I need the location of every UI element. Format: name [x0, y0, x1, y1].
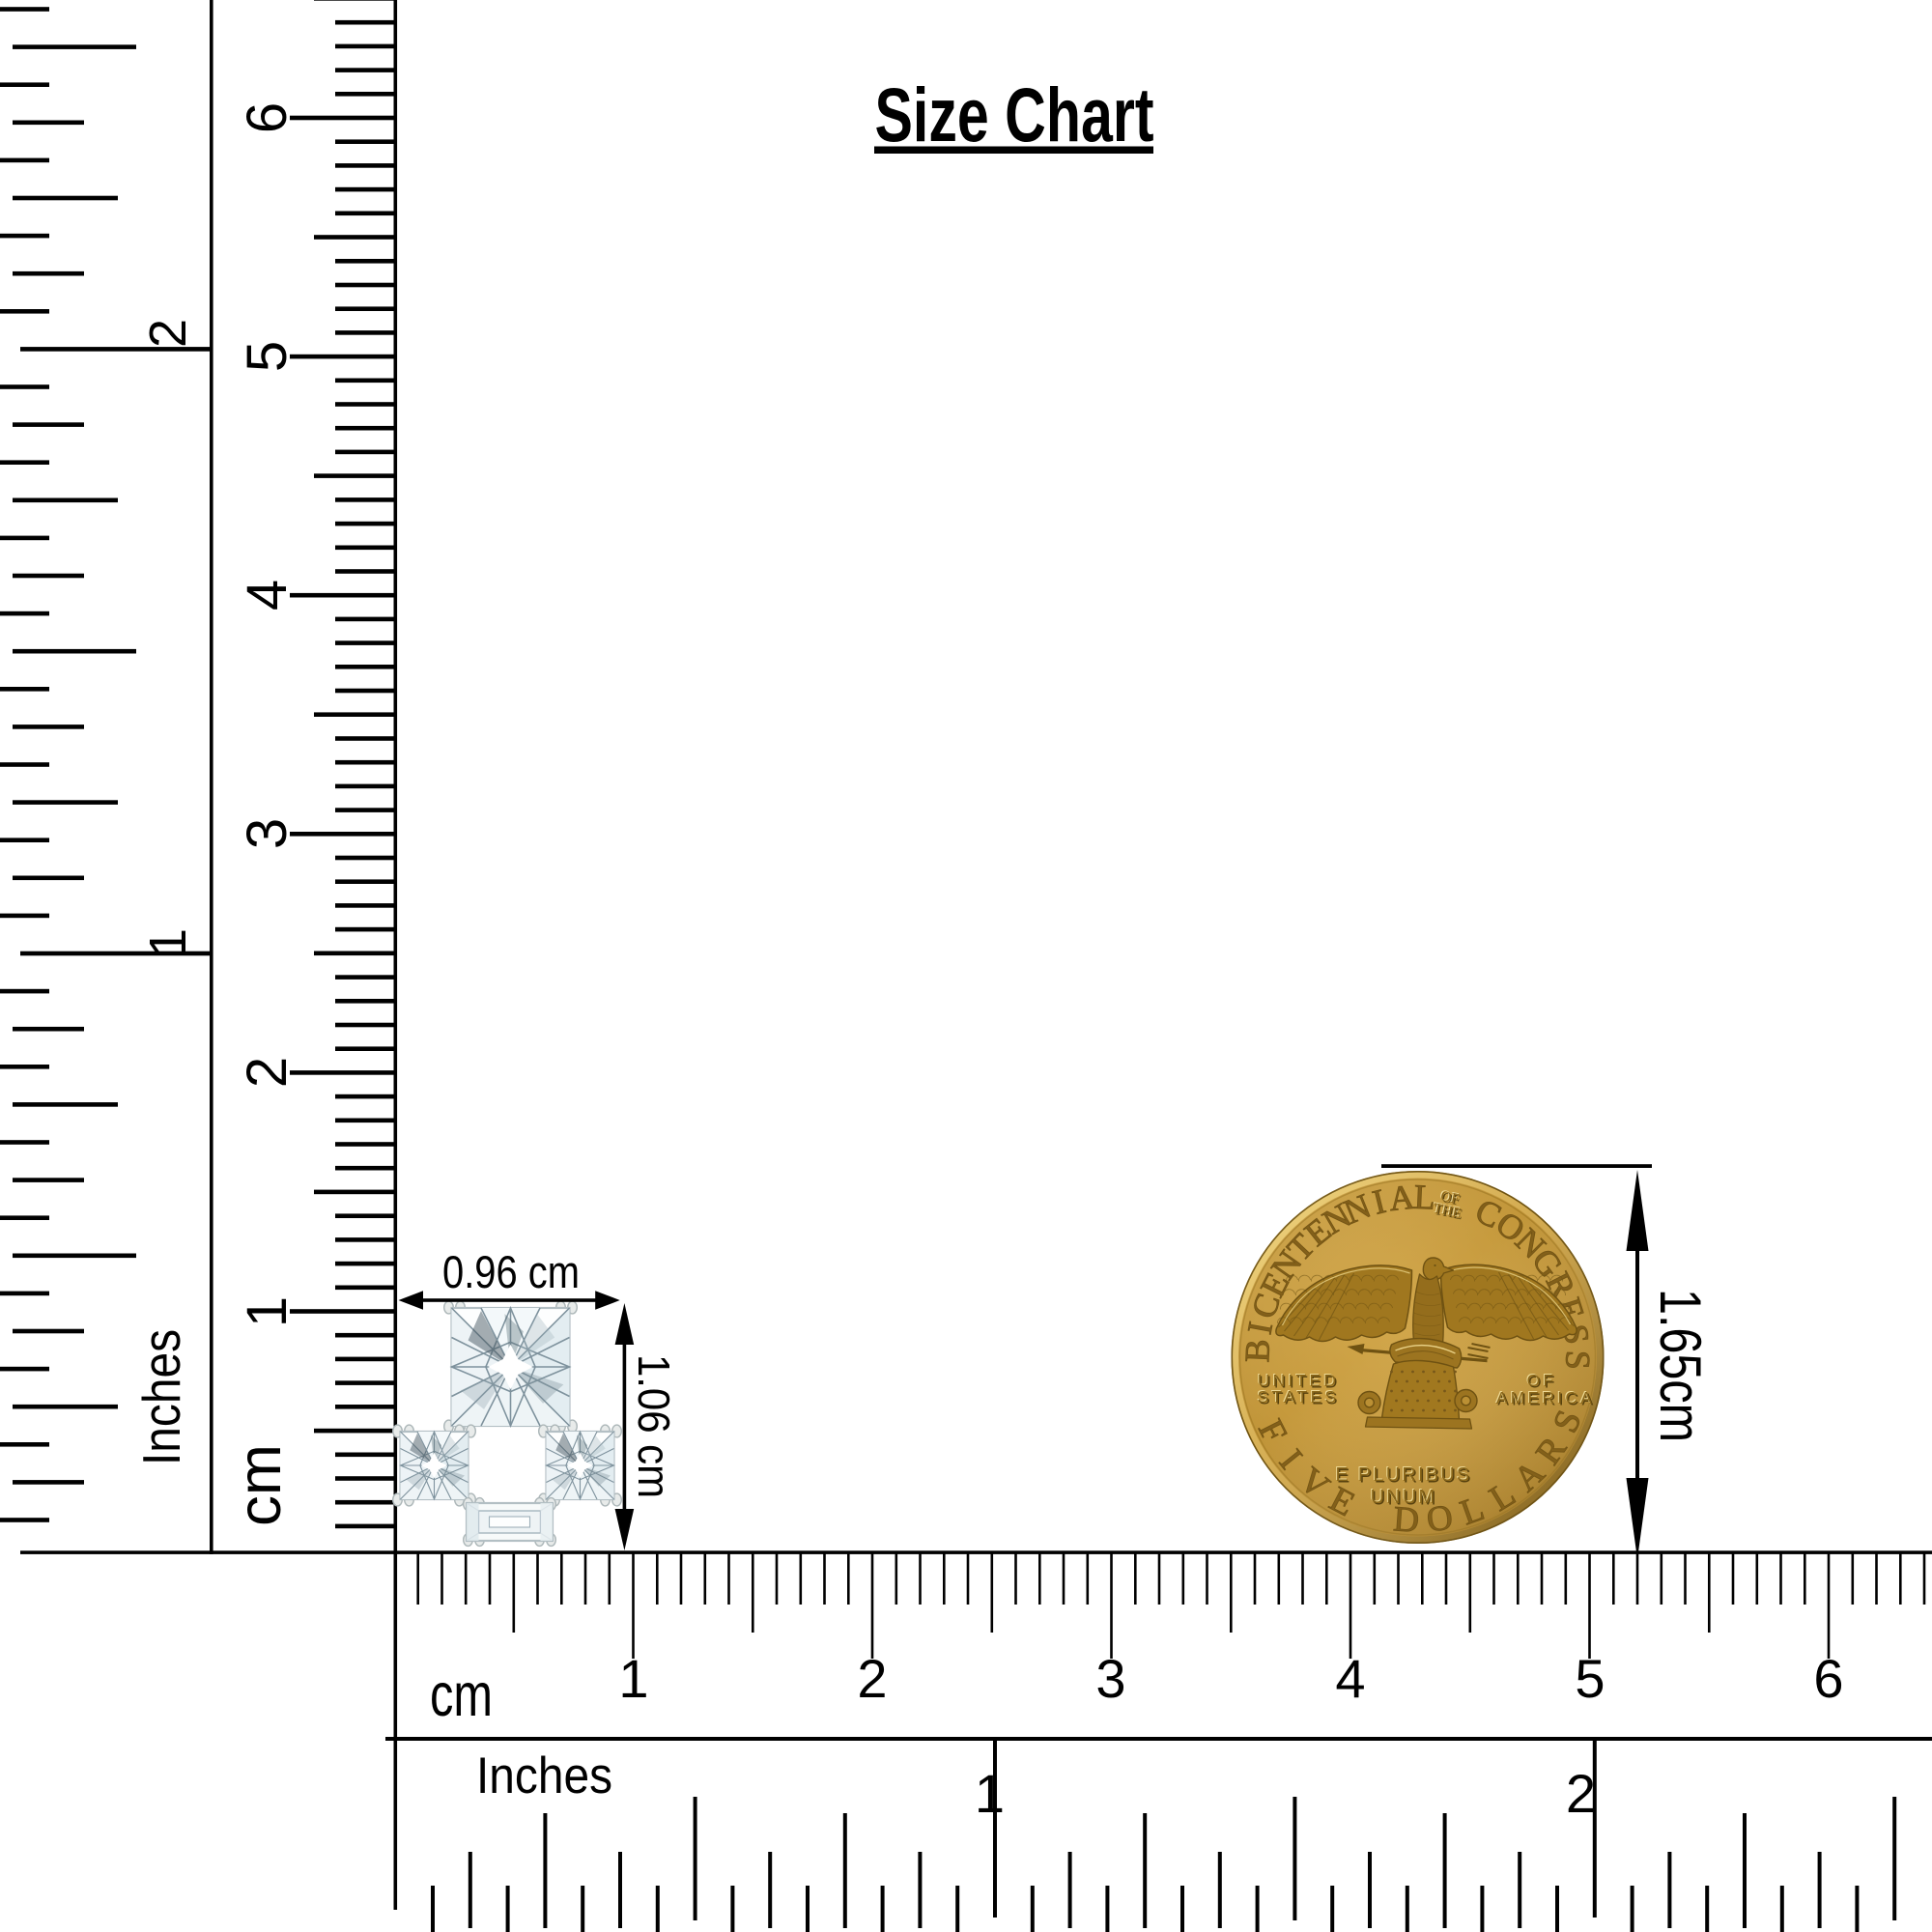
- svg-text:B: B: [1237, 1339, 1277, 1364]
- svg-text:2: 2: [1566, 1763, 1596, 1824]
- svg-text:A: A: [1387, 1178, 1416, 1218]
- svg-text:S: S: [1558, 1350, 1597, 1371]
- svg-text:E PLURIBUS: E PLURIBUS: [1336, 1464, 1472, 1486]
- svg-text:5: 5: [1575, 1648, 1605, 1709]
- svg-text:Size Chart: Size Chart: [875, 71, 1154, 157]
- svg-text:2: 2: [857, 1648, 887, 1709]
- svg-text:6: 6: [236, 102, 298, 133]
- svg-text:2: 2: [139, 319, 197, 348]
- svg-text:0.96 cm: 0.96 cm: [442, 1246, 580, 1297]
- svg-text:Inches: Inches: [131, 1329, 191, 1465]
- svg-text:1: 1: [618, 1648, 648, 1709]
- svg-text:2: 2: [236, 1057, 298, 1088]
- svg-text:AMERICA: AMERICA: [1496, 1388, 1595, 1407]
- svg-text:1: 1: [975, 1763, 1005, 1824]
- svg-text:1.65cm: 1.65cm: [1648, 1289, 1713, 1442]
- svg-text:4: 4: [1335, 1648, 1365, 1709]
- svg-text:1: 1: [139, 928, 197, 957]
- svg-text:3: 3: [236, 818, 298, 849]
- svg-text:3: 3: [1095, 1648, 1125, 1709]
- svg-text:cm: cm: [226, 1444, 294, 1526]
- svg-text:1: 1: [236, 1296, 298, 1327]
- svg-text:6: 6: [1813, 1648, 1843, 1709]
- svg-text:cm: cm: [430, 1662, 493, 1729]
- svg-text:Inches: Inches: [476, 1747, 612, 1804]
- svg-text:1.06 cm: 1.06 cm: [629, 1354, 679, 1498]
- svg-text:UNUM: UNUM: [1371, 1487, 1437, 1508]
- svg-text:4: 4: [236, 580, 298, 611]
- svg-text:5: 5: [236, 341, 298, 372]
- svg-text:STATES: STATES: [1258, 1387, 1340, 1406]
